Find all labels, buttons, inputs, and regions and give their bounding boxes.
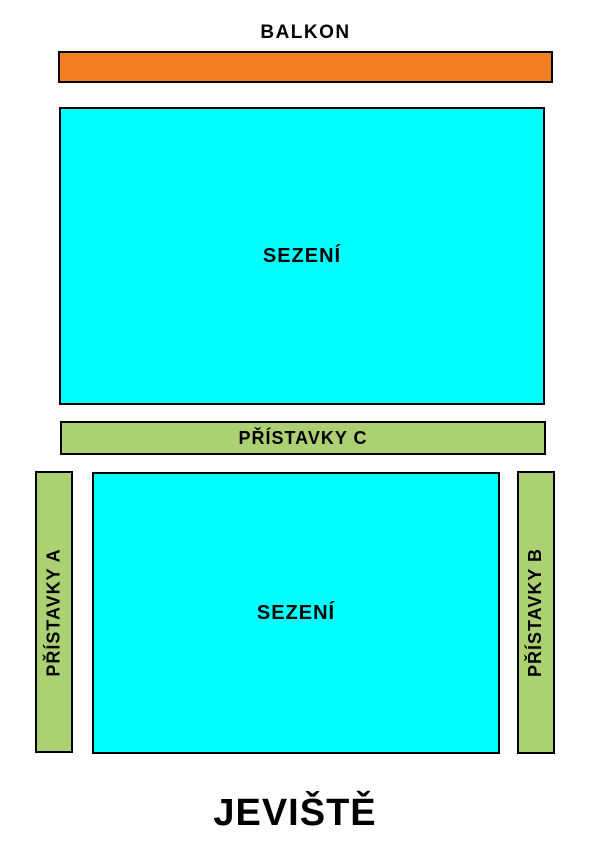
seating-map: BALKON SEZENÍ PŘÍSTAVKY C PŘÍSTAVKY A SE… <box>0 0 612 856</box>
annex-a-label: PŘÍSTAVKY A <box>44 548 65 676</box>
annex-c-section[interactable]: PŘÍSTAVKY C <box>60 421 546 455</box>
seating-lower-section[interactable]: SEZENÍ <box>92 472 500 754</box>
annex-c-label: PŘÍSTAVKY C <box>238 428 367 449</box>
stage-label: JEVIŠTĚ <box>35 792 555 835</box>
balcony-label: BALKON <box>58 22 553 44</box>
annex-b-label: PŘÍSTAVKY B <box>526 548 547 677</box>
seating-upper-label: SEZENÍ <box>263 245 341 268</box>
balcony-section[interactable] <box>58 51 553 83</box>
seating-upper-section[interactable]: SEZENÍ <box>59 107 545 405</box>
seating-lower-label: SEZENÍ <box>257 602 335 625</box>
annex-a-section[interactable]: PŘÍSTAVKY A <box>35 471 73 753</box>
annex-b-section[interactable]: PŘÍSTAVKY B <box>517 471 555 754</box>
